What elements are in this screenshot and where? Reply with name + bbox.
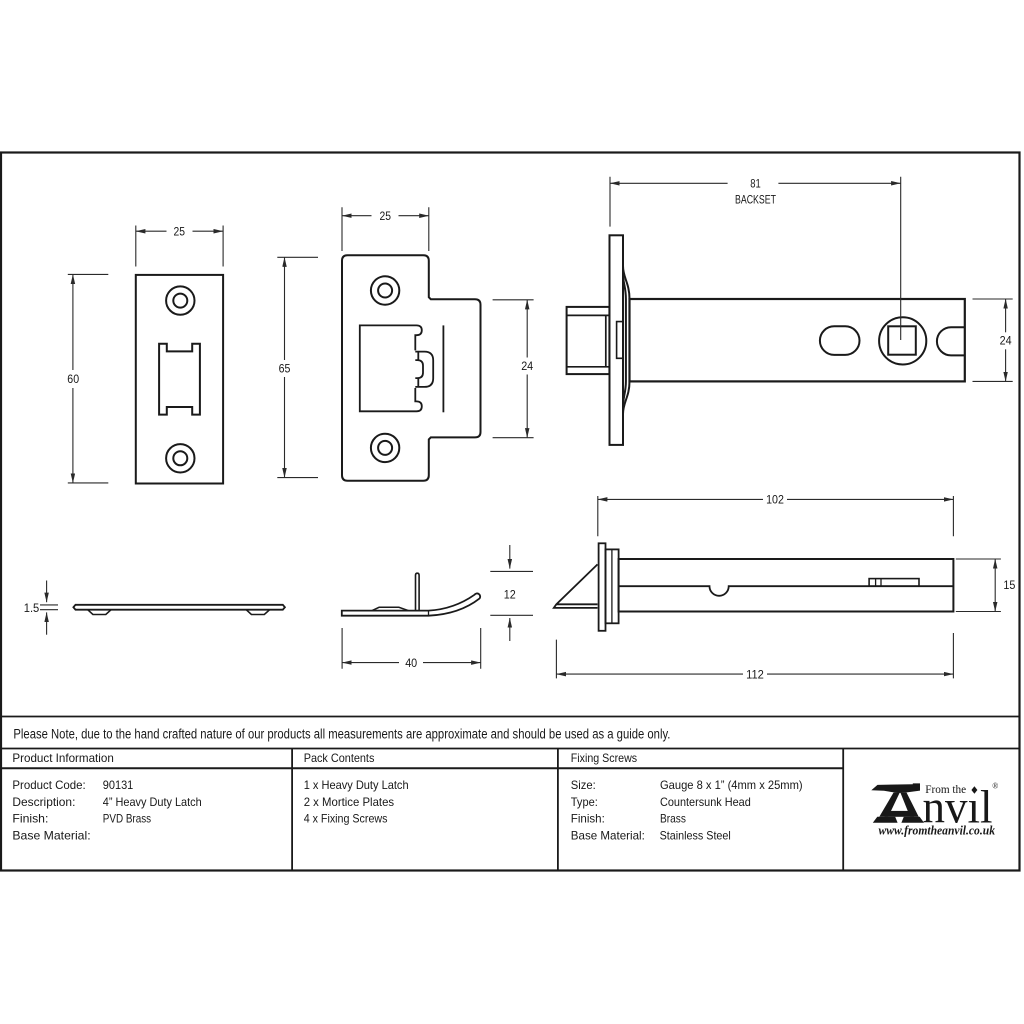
svg-text:Finish:: Finish: — [12, 813, 48, 826]
svg-text:65: 65 — [279, 362, 291, 376]
svg-text:2 x Mortice Plates: 2 x Mortice Plates — [304, 796, 395, 809]
svg-text:24: 24 — [1000, 334, 1012, 348]
svg-text:1.5: 1.5 — [24, 601, 40, 615]
svg-text:102: 102 — [766, 493, 784, 507]
svg-text:15: 15 — [1003, 578, 1015, 592]
svg-text:40: 40 — [405, 656, 417, 670]
svg-text:www.fromtheanvil.co.uk: www.fromtheanvil.co.uk — [879, 824, 996, 838]
svg-text:Brass: Brass — [660, 813, 686, 826]
svg-text:Countersunk Head: Countersunk Head — [660, 796, 751, 809]
svg-text:4” Heavy Duty Latch: 4” Heavy Duty Latch — [103, 796, 202, 809]
svg-text:12: 12 — [504, 588, 516, 602]
svg-text:1 x Heavy Duty Latch: 1 x Heavy Duty Latch — [304, 779, 409, 792]
svg-text:Size:: Size: — [571, 779, 596, 792]
svg-text:Gauge 8 x 1” (4mm x 25mm): Gauge 8 x 1” (4mm x 25mm) — [660, 779, 803, 792]
svg-text:Stainless Steel: Stainless Steel — [660, 830, 731, 843]
svg-text:Type:: Type: — [571, 796, 598, 809]
svg-text:24: 24 — [521, 359, 533, 373]
svg-text:Description:: Description: — [12, 796, 75, 809]
svg-text:81: 81 — [750, 177, 761, 191]
svg-text:25: 25 — [174, 225, 186, 239]
svg-text:90131: 90131 — [103, 779, 134, 792]
svg-text:4 x Fixing Screws: 4 x Fixing Screws — [304, 813, 388, 826]
svg-text:112: 112 — [746, 667, 764, 681]
svg-text:Finish:: Finish: — [571, 813, 605, 826]
svg-text:Product Information: Product Information — [12, 752, 113, 765]
svg-text:25: 25 — [379, 209, 391, 223]
svg-text:Please Note, due to the hand c: Please Note, due to the hand crafted nat… — [13, 726, 670, 741]
svg-text:Fixing Screws: Fixing Screws — [571, 752, 637, 765]
svg-text:Base Material:: Base Material: — [12, 830, 90, 843]
svg-text:BACKSET: BACKSET — [735, 193, 776, 207]
svg-text:Base Material:: Base Material: — [571, 830, 645, 843]
svg-text:Product Code:: Product Code: — [12, 779, 85, 792]
svg-text:®: ® — [992, 782, 998, 791]
svg-text:60: 60 — [67, 372, 79, 386]
svg-text:PVD Brass: PVD Brass — [103, 813, 151, 826]
svg-text:Pack Contents: Pack Contents — [304, 752, 375, 765]
